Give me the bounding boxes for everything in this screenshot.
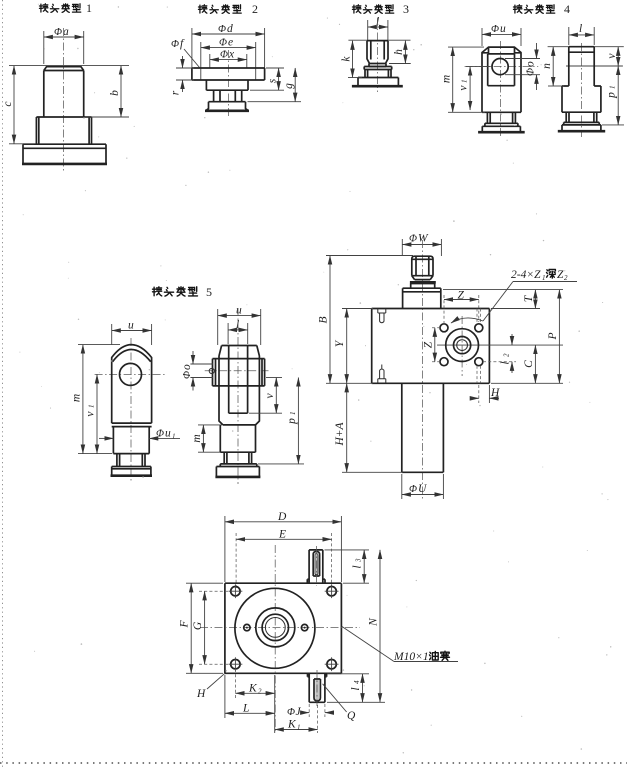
svg-text:Φ: Φ	[171, 39, 179, 50]
svg-text:1: 1	[86, 1, 92, 15]
svg-text:g: g	[283, 83, 295, 89]
svg-text:W: W	[418, 233, 429, 245]
svg-text:H: H	[490, 387, 500, 399]
svg-text:Φ: Φ	[182, 371, 193, 379]
svg-text:D: D	[277, 511, 287, 523]
svg-text:1: 1	[88, 405, 96, 409]
svg-text:v: v	[264, 393, 276, 399]
svg-text:v: v	[85, 411, 97, 417]
svg-text:4: 4	[353, 680, 361, 684]
svg-text:o: o	[181, 364, 193, 370]
svg-text:h: h	[393, 49, 405, 55]
svg-text:3: 3	[355, 558, 363, 563]
svg-text:l: l	[236, 319, 239, 331]
svg-text:e: e	[228, 37, 233, 49]
svg-text:H: H	[196, 688, 206, 700]
svg-text:o: o	[525, 61, 537, 67]
svg-text:K: K	[287, 719, 297, 731]
svg-text:Φ: Φ	[219, 38, 227, 49]
svg-text:n: n	[541, 63, 553, 69]
svg-text:m: m	[441, 75, 453, 83]
svg-text:Z: Z	[422, 341, 434, 348]
svg-text:L: L	[242, 702, 249, 714]
svg-text:Φ: Φ	[526, 68, 537, 76]
svg-text:u: u	[500, 23, 506, 35]
svg-text:l: l	[352, 565, 364, 568]
svg-text:l: l	[350, 687, 362, 690]
svg-text:d: d	[227, 23, 233, 35]
svg-text:Z: Z	[557, 269, 564, 281]
svg-text:H+A: H+A	[334, 421, 346, 446]
svg-text:Φ: Φ	[491, 24, 499, 35]
svg-text:2: 2	[564, 274, 568, 282]
svg-text:2: 2	[252, 2, 258, 16]
svg-text:U: U	[418, 483, 427, 495]
svg-text:p: p	[606, 92, 618, 99]
svg-text:Φ: Φ	[220, 50, 228, 61]
svg-text:k: k	[341, 56, 353, 62]
svg-text:Φ: Φ	[409, 234, 417, 245]
svg-text:u: u	[165, 428, 171, 440]
svg-text:J: J	[296, 706, 302, 718]
svg-text:F: F	[179, 620, 191, 629]
svg-text:2-4×Z: 2-4×Z	[511, 269, 541, 281]
svg-text:p: p	[286, 418, 298, 425]
svg-text:l: l	[500, 361, 512, 364]
svg-text:Φ: Φ	[287, 707, 295, 718]
svg-text:1: 1	[461, 80, 469, 84]
svg-text:m: m	[191, 434, 203, 442]
svg-text:Φ: Φ	[54, 27, 62, 38]
svg-text:4: 4	[564, 2, 570, 16]
svg-text:C: C	[523, 360, 535, 368]
svg-text:1: 1	[297, 724, 301, 732]
svg-text:1: 1	[609, 86, 617, 90]
svg-text:2: 2	[503, 353, 511, 357]
svg-text:B: B	[318, 316, 330, 323]
svg-text:1: 1	[542, 274, 546, 282]
svg-text:v: v	[458, 85, 470, 91]
svg-text:m: m	[71, 394, 83, 402]
svg-text:E: E	[278, 528, 286, 540]
svg-text:Φ: Φ	[218, 24, 226, 35]
svg-text:u: u	[128, 320, 134, 332]
svg-text:c: c	[2, 101, 14, 106]
svg-text:Φ: Φ	[156, 429, 164, 440]
svg-text:1: 1	[289, 412, 297, 416]
svg-text:K: K	[248, 682, 258, 694]
svg-text:2: 2	[258, 687, 262, 695]
svg-text:Q: Q	[347, 710, 356, 722]
svg-text:Φ: Φ	[409, 484, 417, 495]
svg-text:x: x	[228, 49, 235, 61]
svg-text:Z: Z	[458, 290, 465, 302]
svg-text:b: b	[109, 90, 121, 96]
svg-text:N: N	[368, 617, 380, 627]
svg-text:P: P	[547, 332, 559, 340]
svg-text:s: s	[267, 78, 279, 83]
svg-text:r: r	[170, 90, 182, 95]
svg-text:5: 5	[206, 285, 212, 299]
svg-text:3: 3	[403, 2, 409, 16]
svg-text:l: l	[579, 23, 582, 35]
svg-text:u: u	[236, 305, 242, 317]
svg-text:v: v	[606, 53, 618, 59]
svg-text:G: G	[192, 621, 204, 630]
svg-text:1: 1	[172, 433, 176, 441]
